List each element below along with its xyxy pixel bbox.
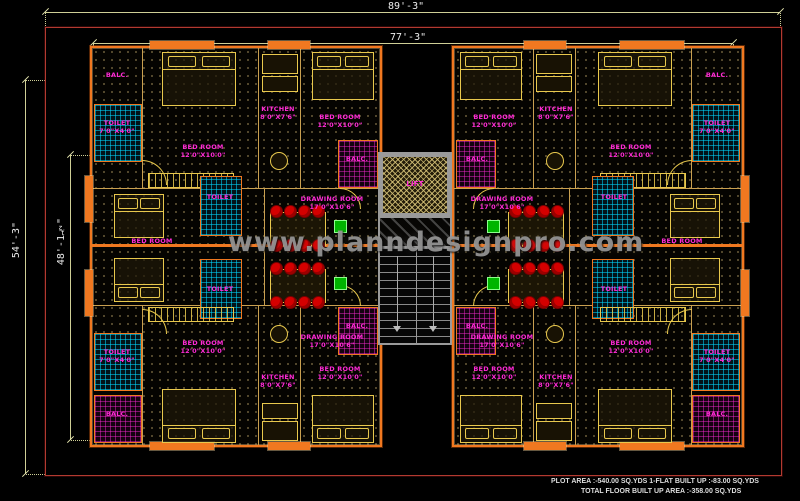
room-label-drawing-room: DRAWING ROOM 17'0"X10'6": [458, 334, 546, 349]
room-label-bedroom: BED ROOM 12'0"X10'0": [148, 144, 258, 159]
dim-line-89ft: [45, 12, 780, 13]
room-label-balcony: BALC.: [94, 72, 140, 80]
wall-pillar: [85, 176, 93, 222]
bed-line: [461, 69, 521, 70]
kitchen-sink: [546, 325, 564, 343]
room-label-toilet: TOILET: [198, 286, 242, 294]
dim-extension: [26, 474, 45, 475]
room-label-toilet: TOILET 7'0"X4'0": [694, 349, 740, 364]
room-label-bedroom: BED ROOM 12'0"X10'0": [148, 340, 258, 355]
dining-chair: [270, 205, 283, 218]
room-label-bedroom: BED ROOM: [110, 238, 194, 246]
balcony-protrusion: [268, 442, 310, 450]
kitchen-counter: [536, 421, 572, 441]
bed-line: [163, 69, 235, 70]
dim-text-89ft: 89'-3": [388, 1, 424, 12]
balcony-floor-hatch: [94, 395, 142, 443]
bed-symbol: [114, 194, 164, 238]
pillow: [118, 287, 137, 298]
room-label-balcony: BALC.: [456, 323, 498, 331]
room-label-bedroom: BED ROOM 12'0"X10'0": [304, 114, 376, 129]
room-label-balcony: BALC.: [94, 411, 140, 419]
pillow: [202, 56, 230, 67]
pillow: [604, 428, 632, 439]
pillow: [202, 428, 230, 439]
dining-chair: [537, 262, 550, 275]
kitchen-sink: [270, 325, 288, 343]
balcony-protrusion: [524, 442, 566, 450]
pillow: [638, 56, 666, 67]
bed-line: [671, 284, 719, 285]
kitchen-counter: [536, 54, 572, 74]
dim-extension: [780, 13, 781, 28]
stair-divider: [416, 248, 417, 343]
balcony-protrusion: [620, 41, 684, 49]
stair-arrow-line: [397, 256, 398, 326]
room-label-balcony: BALC.: [456, 156, 498, 164]
bed-symbol: [312, 395, 374, 443]
bed-symbol: [162, 52, 236, 106]
pillow: [674, 198, 693, 209]
bed-line: [599, 69, 671, 70]
dining-chair: [270, 262, 283, 275]
pillow: [465, 56, 489, 67]
door-swing: [142, 160, 167, 185]
wall-pillar: [741, 176, 749, 222]
dim-line-54ft: [25, 80, 26, 474]
dining-chair: [312, 262, 325, 275]
lift-shaft: LIFT: [378, 152, 452, 218]
stair-arrow-line: [433, 256, 434, 326]
door-swing: [667, 160, 692, 185]
wall-pillar: [741, 270, 749, 316]
room-label-lift: LIFT: [406, 181, 423, 189]
room-label-balcony: BALC.: [336, 156, 378, 164]
room-label-kitchen: KITCHEN 8'0"X7'6": [534, 106, 578, 121]
room-label-balcony: BALC.: [336, 323, 378, 331]
watermark-text: www.planndesignpro.com: [228, 227, 572, 258]
pillow: [696, 198, 715, 209]
total-builtup-line: TOTAL FLOOR BUILT UP AREA :-358.00 SQ.YD…: [551, 487, 797, 497]
bed-line: [115, 211, 163, 212]
room-label-toilet: TOILET 7'0"X4'0": [94, 349, 140, 364]
dining-end-seat: [487, 277, 500, 290]
room-label-bedroom: BED ROOM 12'0"X10'0": [576, 144, 686, 159]
bed-line: [461, 425, 521, 426]
bed-symbol: [670, 194, 720, 238]
dining-chair: [509, 296, 522, 309]
room-label-kitchen: KITCHEN 8'0"X7'6": [256, 374, 300, 389]
bed-symbol: [114, 258, 164, 302]
dining-chair: [523, 296, 536, 309]
stair-arrow-down: [393, 326, 401, 332]
plot-area-line: PLOT AREA :-540.00 SQ.YDS 1-FLAT BUILT U…: [551, 477, 797, 487]
pillow: [345, 428, 369, 439]
balcony-floor-hatch: [338, 140, 378, 188]
pillow: [118, 198, 137, 209]
wall: [300, 305, 301, 445]
pillow: [168, 56, 196, 67]
wall-pillar: [85, 270, 93, 316]
room-label-drawing-room: DRAWING ROOM 17'0"X10'6": [458, 196, 546, 211]
bed-line: [671, 211, 719, 212]
balcony-protrusion: [524, 41, 566, 49]
pillow: [493, 428, 517, 439]
dining-chair: [284, 296, 297, 309]
bed-symbol: [670, 258, 720, 302]
bed-symbol: [312, 52, 374, 100]
room-label-toilet: TOILET 7'0"X4'0": [94, 120, 140, 135]
kitchen-sink: [546, 152, 564, 170]
pillow: [140, 198, 159, 209]
kitchen-counter: [262, 421, 298, 441]
dim-text-54ft: 54'-3": [11, 222, 22, 258]
pillow: [140, 287, 159, 298]
room-label-bedroom: BED ROOM 12'0"X10'0": [458, 366, 530, 381]
dining-chair: [509, 262, 522, 275]
room-label-bedroom: BED ROOM: [640, 238, 724, 246]
dining-chair: [537, 296, 550, 309]
pillow: [604, 56, 632, 67]
kitchen-counter: [262, 76, 298, 92]
area-statement: PLOT AREA :-540.00 SQ.YDS 1-FLAT BUILT U…: [551, 477, 797, 497]
kitchen-counter: [262, 403, 298, 419]
room-label-bedroom: BED ROOM 12'0"X10'0": [458, 114, 530, 129]
pillow: [345, 56, 369, 67]
dining-chair: [298, 296, 311, 309]
balcony-protrusion: [150, 442, 214, 450]
dim-extension: [26, 80, 45, 81]
room-label-kitchen: KITCHEN 8'0"X7'6": [256, 106, 300, 121]
kitchen-counter: [536, 76, 572, 92]
bed-line: [115, 284, 163, 285]
pillow: [493, 56, 517, 67]
balcony-protrusion: [150, 41, 214, 49]
bed-line: [599, 425, 671, 426]
pillow: [638, 428, 666, 439]
kitchen-sink: [270, 152, 288, 170]
room-label-kitchen: KITCHEN 8'0"X7'6": [534, 374, 578, 389]
room-label-toilet: TOILET: [592, 194, 636, 202]
room-label-toilet: TOILET 7'0"X4'0": [694, 120, 740, 135]
pillow: [168, 428, 196, 439]
bed-line: [163, 425, 235, 426]
kitchen-counter: [536, 403, 572, 419]
wall: [300, 48, 301, 188]
room-label-balcony: BALC.: [694, 411, 740, 419]
room-label-balcony: BALC.: [694, 72, 740, 80]
bed-symbol: [598, 52, 672, 106]
dining-chair: [284, 262, 297, 275]
dining-chair: [551, 262, 564, 275]
room-label-drawing-room: DRAWING ROOM 17'0"X10'6": [288, 334, 376, 349]
bed-symbol: [598, 389, 672, 443]
cad-floor-plan-canvas: 89'-3" 77'-3" 54'-3" 48'-1½": [0, 0, 800, 501]
stair-arrow-down: [429, 326, 437, 332]
dining-chair: [298, 262, 311, 275]
dining-chair: [270, 296, 283, 309]
room-label-bedroom: BED ROOM 12'0"X10'0": [576, 340, 686, 355]
room-label-toilet: TOILET: [592, 286, 636, 294]
pillow: [465, 428, 489, 439]
bed-line: [313, 425, 373, 426]
dining-chair: [551, 296, 564, 309]
balcony-protrusion: [268, 41, 310, 49]
kitchen-counter: [262, 54, 298, 74]
pillow: [317, 56, 341, 67]
dim-extension: [45, 13, 46, 28]
pillow: [696, 287, 715, 298]
pillow: [317, 428, 341, 439]
bed-symbol: [460, 52, 522, 100]
bed-symbol: [162, 389, 236, 443]
dining-chair: [523, 262, 536, 275]
dining-chair: [551, 205, 564, 218]
room-label-bedroom: BED ROOM 12'0"X10'0": [304, 366, 376, 381]
room-label-drawing-room: DRAWING ROOM 17'0"X10'6": [288, 196, 376, 211]
room-label-toilet: TOILET: [198, 194, 242, 202]
bed-symbol: [460, 395, 522, 443]
bed-line: [313, 69, 373, 70]
pillow: [674, 287, 693, 298]
balcony-protrusion: [620, 442, 684, 450]
balcony-floor-hatch: [692, 395, 740, 443]
staircase: [378, 246, 452, 345]
balcony-floor-hatch: [456, 140, 496, 188]
dining-chair: [312, 296, 325, 309]
dining-end-seat: [334, 277, 347, 290]
